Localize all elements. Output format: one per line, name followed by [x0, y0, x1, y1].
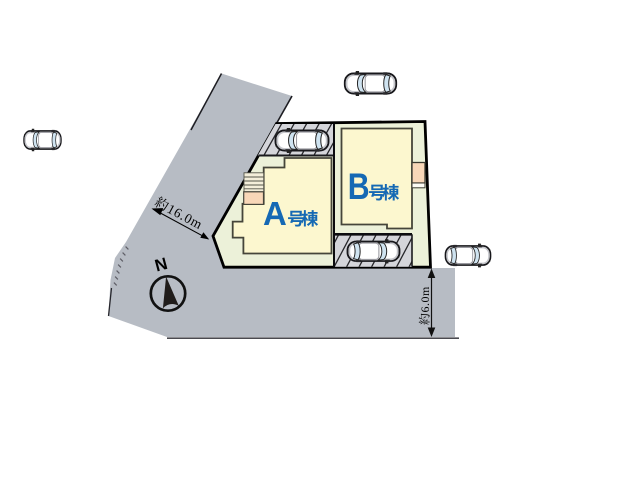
svg-text:6.0m: 6.0m: [418, 286, 432, 313]
svg-text:B: B: [348, 166, 370, 208]
svg-text:A: A: [263, 195, 287, 232]
